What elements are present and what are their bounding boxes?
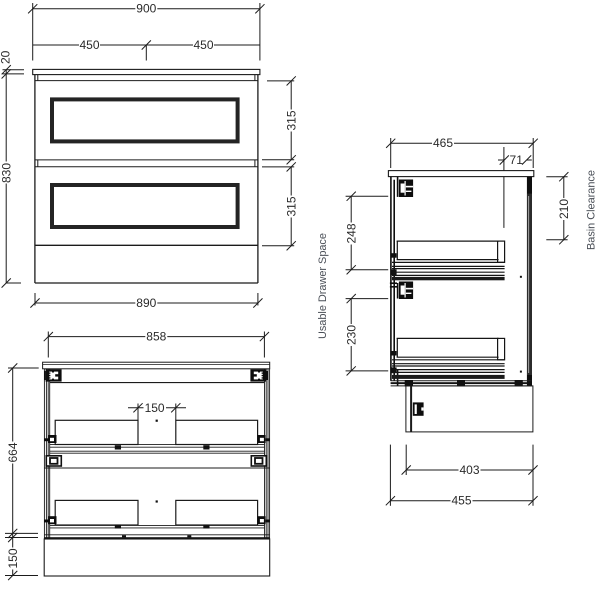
svg-text:150: 150 (145, 401, 165, 415)
svg-text:315: 315 (284, 110, 298, 130)
svg-text:830: 830 (0, 163, 13, 183)
svg-text:890: 890 (136, 296, 156, 310)
svg-text:858: 858 (146, 329, 166, 343)
svg-text:Basin Clearance: Basin Clearance (586, 170, 598, 250)
svg-text:20: 20 (0, 50, 12, 64)
svg-text:403: 403 (459, 463, 479, 477)
svg-text:465: 465 (433, 136, 453, 150)
svg-text:900: 900 (136, 2, 156, 16)
svg-text:230: 230 (344, 325, 358, 345)
svg-text:664: 664 (6, 442, 20, 462)
svg-text:150: 150 (6, 548, 20, 568)
svg-text:71: 71 (510, 153, 524, 167)
svg-text:315: 315 (284, 196, 298, 216)
svg-text:210: 210 (557, 199, 571, 219)
svg-text:455: 455 (451, 494, 471, 508)
svg-text:Usable Drawer Space: Usable Drawer Space (317, 233, 329, 339)
svg-text:248: 248 (344, 223, 358, 243)
svg-text:450: 450 (193, 38, 213, 52)
svg-text:450: 450 (79, 38, 99, 52)
